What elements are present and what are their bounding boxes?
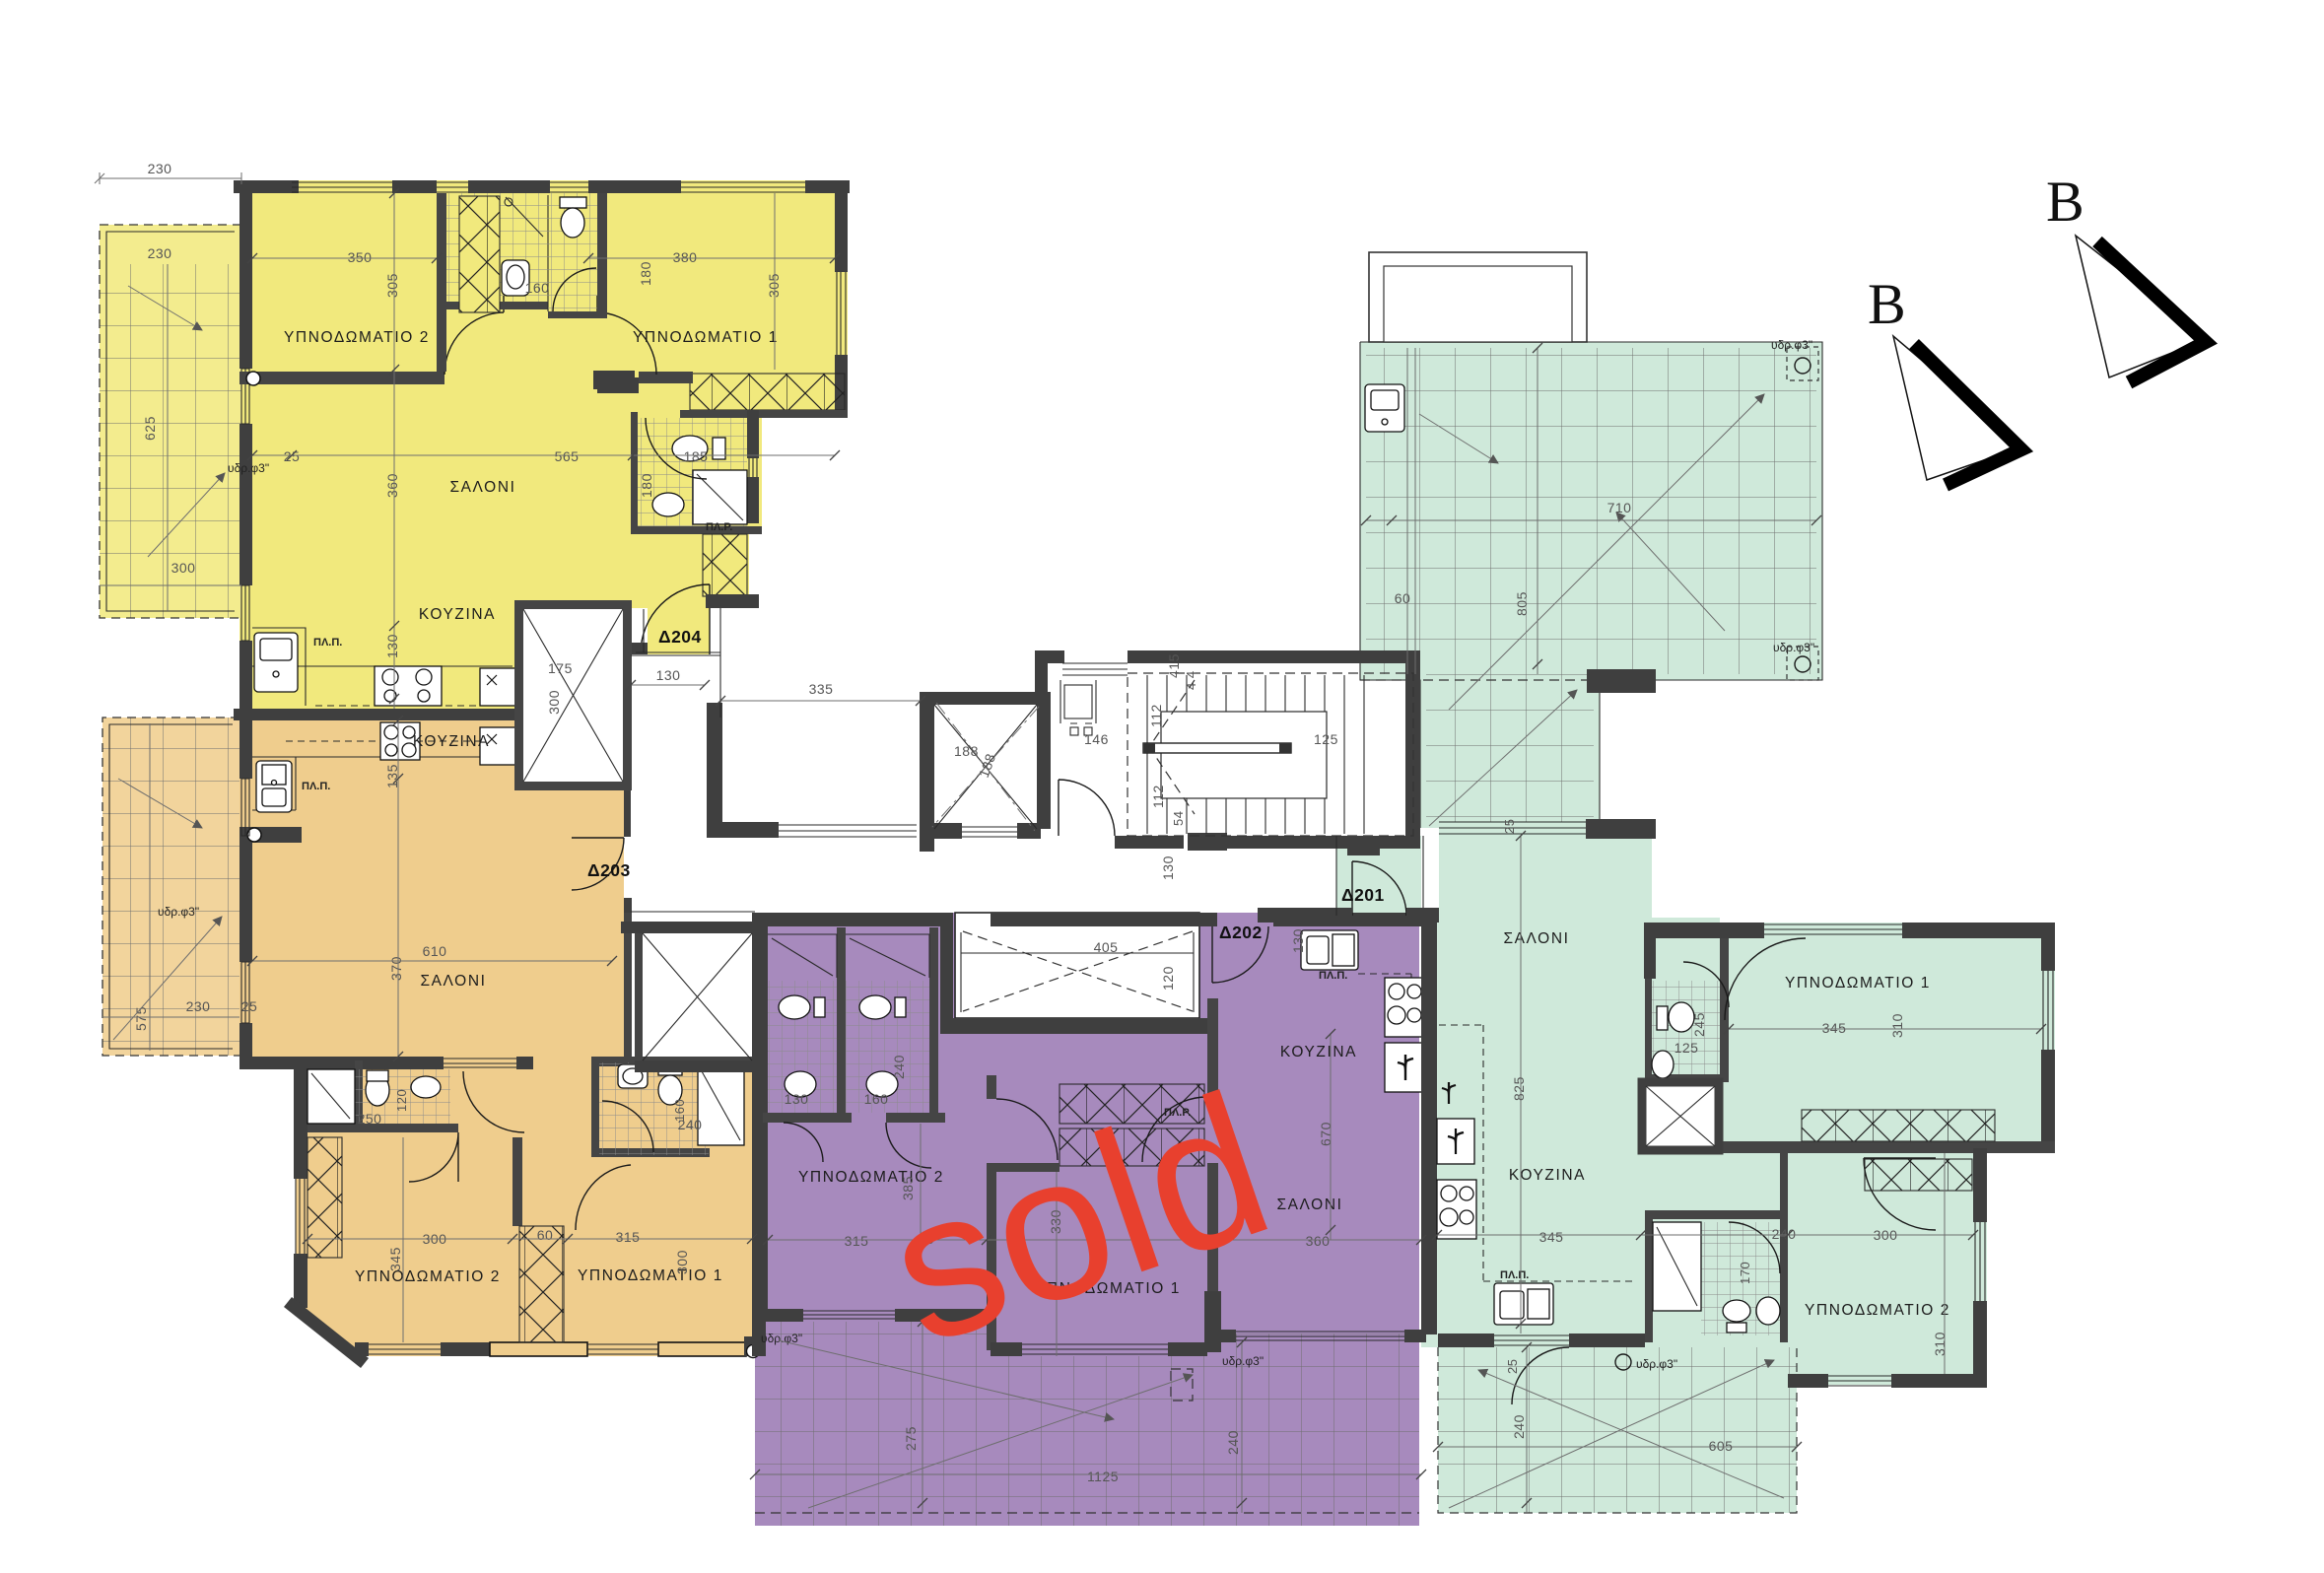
svg-text:4 4: 4 4 <box>1184 670 1198 690</box>
svg-text:146: 146 <box>1084 731 1109 747</box>
svg-text:112: 112 <box>1148 704 1164 727</box>
svg-text:54: 54 <box>1171 811 1186 826</box>
svg-text:300: 300 <box>546 690 562 715</box>
svg-text:υδρ.φ3": υδρ.φ3" <box>761 1332 802 1345</box>
svg-text:625: 625 <box>142 416 158 441</box>
svg-text:360: 360 <box>1306 1233 1331 1249</box>
svg-text:1125: 1125 <box>1087 1469 1119 1484</box>
svg-text:170: 170 <box>1738 1262 1752 1284</box>
svg-text:230: 230 <box>148 245 172 261</box>
svg-text:160: 160 <box>864 1091 889 1107</box>
svg-text:ΥΠΝΟΔΩΜΑΤΙΟ 2: ΥΠΝΟΔΩΜΑΤΙΟ 2 <box>355 1268 501 1285</box>
svg-text:405: 405 <box>1094 939 1119 955</box>
svg-text:υδρ.φ3": υδρ.φ3" <box>1636 1357 1677 1371</box>
svg-text:112: 112 <box>1150 785 1166 808</box>
svg-text:ΠΛ.Ρ.: ΠΛ.Ρ. <box>706 521 732 533</box>
svg-text:ΚΟΥΖΙΝΑ: ΚΟΥΖΙΝΑ <box>419 606 496 623</box>
svg-text:805: 805 <box>1514 591 1530 616</box>
svg-text:125: 125 <box>1675 1040 1699 1056</box>
svg-text:315: 315 <box>845 1233 869 1249</box>
svg-text:670: 670 <box>1318 1122 1333 1146</box>
svg-text:υδρ.φ3": υδρ.φ3" <box>1771 338 1812 352</box>
svg-text:188: 188 <box>954 743 979 759</box>
svg-text:ΠΛ.Π.: ΠΛ.Π. <box>302 781 330 792</box>
svg-text:360: 360 <box>384 473 400 498</box>
svg-text:610: 610 <box>423 943 447 959</box>
svg-text:230: 230 <box>148 161 172 176</box>
svg-text:25: 25 <box>1505 1359 1520 1374</box>
svg-text:Δ203: Δ203 <box>587 860 631 880</box>
svg-text:130: 130 <box>1160 855 1176 880</box>
svg-text:575: 575 <box>133 1006 149 1031</box>
svg-text:υδρ.φ3": υδρ.φ3" <box>228 461 269 475</box>
svg-text:25: 25 <box>1502 819 1517 834</box>
svg-text:Δ201: Δ201 <box>1341 885 1385 905</box>
svg-text:310: 310 <box>1932 1332 1948 1356</box>
svg-text:130: 130 <box>1290 928 1306 953</box>
svg-text:υδρ.φ3": υδρ.φ3" <box>1222 1354 1264 1368</box>
svg-text:710: 710 <box>1607 500 1632 515</box>
svg-text:415: 415 <box>1166 653 1182 678</box>
svg-text:ΥΠΝΟΔΩΜΑΤΙΟ 1: ΥΠΝΟΔΩΜΑΤΙΟ 1 <box>1785 975 1931 992</box>
svg-text:240: 240 <box>678 1117 703 1132</box>
svg-text:130: 130 <box>656 667 681 683</box>
svg-text:υδρ.φ3": υδρ.φ3" <box>1773 641 1814 654</box>
svg-text:ΥΠΝΟΔΩΜΑΤΙΟ 2: ΥΠΝΟΔΩΜΑΤΙΟ 2 <box>1805 1302 1950 1319</box>
svg-text:ΣΑΛΟΝΙ: ΣΑΛΟΝΙ <box>420 973 486 990</box>
svg-text:250: 250 <box>358 1111 382 1127</box>
svg-text:240: 240 <box>1511 1414 1527 1439</box>
svg-text:345: 345 <box>1539 1229 1564 1245</box>
svg-text:180: 180 <box>638 261 653 286</box>
svg-text:ΥΠΝΟΔΩΜΑΤΙΟ 2: ΥΠΝΟΔΩΜΑΤΙΟ 2 <box>284 329 430 346</box>
svg-text:345: 345 <box>1822 1020 1847 1036</box>
svg-text:B: B <box>1868 272 1906 336</box>
svg-text:Δ202: Δ202 <box>1219 923 1263 942</box>
svg-text:240: 240 <box>891 1055 907 1079</box>
svg-text:ΥΠΝΟΔΩΜΑΤΙΟ 1: ΥΠΝΟΔΩΜΑΤΙΟ 1 <box>633 329 779 346</box>
svg-text:605: 605 <box>1709 1438 1734 1454</box>
svg-text:ΣΑΛΟΝΙ: ΣΑΛΟΝΙ <box>449 479 515 496</box>
svg-text:Δ204: Δ204 <box>658 627 702 647</box>
svg-text:25: 25 <box>241 998 258 1014</box>
svg-text:335: 335 <box>809 681 834 697</box>
svg-text:185: 185 <box>684 448 709 464</box>
svg-text:350: 350 <box>348 249 373 265</box>
svg-text:25: 25 <box>284 448 301 464</box>
svg-text:ΣΑΛΟΝΙ: ΣΑΛΟΝΙ <box>1503 930 1569 947</box>
svg-text:175: 175 <box>548 660 573 676</box>
svg-text:825: 825 <box>1511 1076 1527 1101</box>
svg-text:230: 230 <box>186 998 211 1014</box>
svg-text:370: 370 <box>388 956 404 981</box>
svg-text:345: 345 <box>387 1247 403 1271</box>
svg-text:ΠΛ.Π.: ΠΛ.Π. <box>1500 1269 1529 1281</box>
svg-text:160: 160 <box>525 280 550 296</box>
svg-text:130: 130 <box>785 1091 809 1107</box>
svg-text:ΥΠΝΟΔΩΜΑΤΙΟ 1: ΥΠΝΟΔΩΜΑΤΙΟ 1 <box>578 1267 723 1284</box>
svg-text:B: B <box>2046 170 2085 234</box>
svg-text:60: 60 <box>1395 590 1411 606</box>
svg-text:130: 130 <box>384 634 400 658</box>
svg-text:ΠΛ.Π.: ΠΛ.Π. <box>1319 970 1347 982</box>
svg-text:315: 315 <box>616 1229 641 1245</box>
svg-text:565: 565 <box>555 448 580 464</box>
svg-text:245: 245 <box>1691 1012 1707 1037</box>
svg-text:180: 180 <box>639 473 654 498</box>
svg-text:275: 275 <box>903 1426 919 1451</box>
svg-text:300: 300 <box>171 560 196 576</box>
svg-text:240: 240 <box>1225 1430 1241 1455</box>
svg-text:310: 310 <box>1889 1013 1905 1038</box>
svg-text:ΚΟΥΖΙΝΑ: ΚΟΥΖΙΝΑ <box>413 733 490 750</box>
svg-text:300: 300 <box>674 1250 690 1274</box>
svg-text:305: 305 <box>384 273 400 298</box>
svg-text:ΠΛ.Π.: ΠΛ.Π. <box>313 637 342 649</box>
svg-text:120: 120 <box>394 1089 409 1112</box>
svg-text:60: 60 <box>537 1227 554 1243</box>
svg-text:380: 380 <box>673 249 698 265</box>
svg-text:125: 125 <box>1314 731 1338 747</box>
svg-text:υδρ.φ3": υδρ.φ3" <box>158 905 199 919</box>
svg-text:120: 120 <box>1160 966 1176 991</box>
svg-text:ΣΑΛΟΝΙ: ΣΑΛΟΝΙ <box>1276 1197 1342 1213</box>
svg-text:ΚΟΥΖΙΝΑ: ΚΟΥΖΙΝΑ <box>1280 1044 1357 1060</box>
svg-text:305: 305 <box>766 273 782 298</box>
